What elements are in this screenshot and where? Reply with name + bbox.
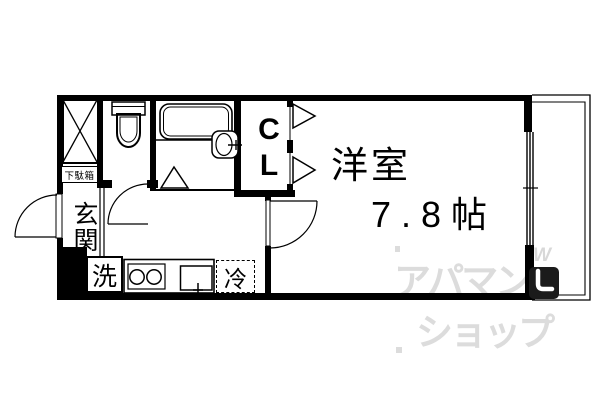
window-sliding [523, 132, 538, 245]
bath-folding-door-icon [161, 167, 188, 188]
hallway-partition-line [100, 188, 104, 257]
toilet-icon [112, 102, 145, 147]
washroom-door-swing-icon [108, 184, 148, 224]
apaman-logo [529, 267, 559, 299]
washer-label: 洗 [92, 257, 117, 293]
entrance-door-swing-icon [15, 194, 62, 238]
room-name-label: 洋室 [331, 147, 411, 184]
fridge-label: 冷 [224, 260, 247, 294]
washer-box: 洗 [86, 256, 123, 293]
entrance-label: 玄関 [71, 201, 96, 253]
shoe-cabinet-box: 下駄箱 [61, 166, 98, 183]
watermark-logo-w-mark: W [533, 245, 551, 267]
room-size-label: 7.8帖 [371, 197, 497, 233]
fridge-box: 冷 [216, 260, 255, 293]
washbasin-icon [212, 131, 242, 158]
apaman-logo-mark [529, 267, 559, 299]
stove-burners-icon [128, 264, 165, 289]
shoe-cabinet-label: 下駄箱 [64, 168, 94, 182]
closet-label: C L [253, 112, 285, 184]
closet-folding-door-icon [290, 104, 315, 184]
ps-crossed-box-icon [63, 99, 98, 163]
floor-plan: アパマン ショップ [0, 0, 600, 400]
room-door-swing-icon [266, 200, 317, 248]
